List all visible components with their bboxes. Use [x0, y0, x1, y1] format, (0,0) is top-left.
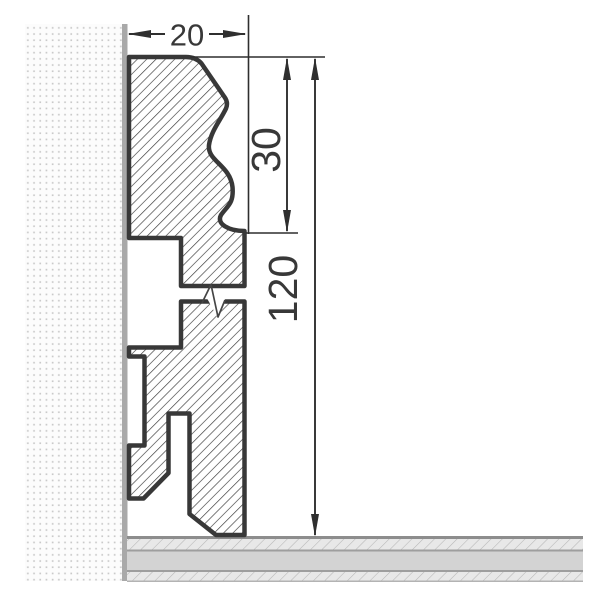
wall-dotted-texture: [25, 24, 122, 581]
floor-separator-line-lower: [127, 570, 583, 572]
dimension-width: 20: [128, 18, 247, 53]
floor-layer-middle: [127, 552, 583, 571]
dimension-cap-height-value: 30: [243, 127, 289, 173]
floor-separator-line-upper: [127, 550, 583, 552]
dimension-width-value: 20: [170, 18, 204, 53]
skirting-profile-lower-section: [129, 302, 245, 536]
arrowhead-right: [223, 30, 247, 38]
wall-surface-line: [122, 24, 128, 581]
arrowhead-down: [311, 514, 319, 537]
technical-drawing-canvas: 20 30 120: [0, 0, 604, 604]
arrowhead-down: [283, 210, 291, 233]
floor-top-edge-line: [127, 536, 583, 539]
skirting-profile-upper-section: [129, 57, 245, 286]
dimension-cap-height: 30: [243, 58, 291, 233]
floor-layer-top-hatch: [127, 539, 583, 550]
arrowhead-up: [283, 58, 291, 81]
dimension-total-height-value: 120: [260, 255, 306, 323]
floor-bottom-edge-line: [127, 581, 583, 583]
floor-layers: [127, 536, 583, 582]
drawing-stage: 20 30 120: [0, 0, 604, 604]
arrowhead-up: [311, 58, 319, 81]
arrowhead-left: [128, 30, 152, 38]
floor-layer-bottom-hatch: [127, 572, 583, 581]
